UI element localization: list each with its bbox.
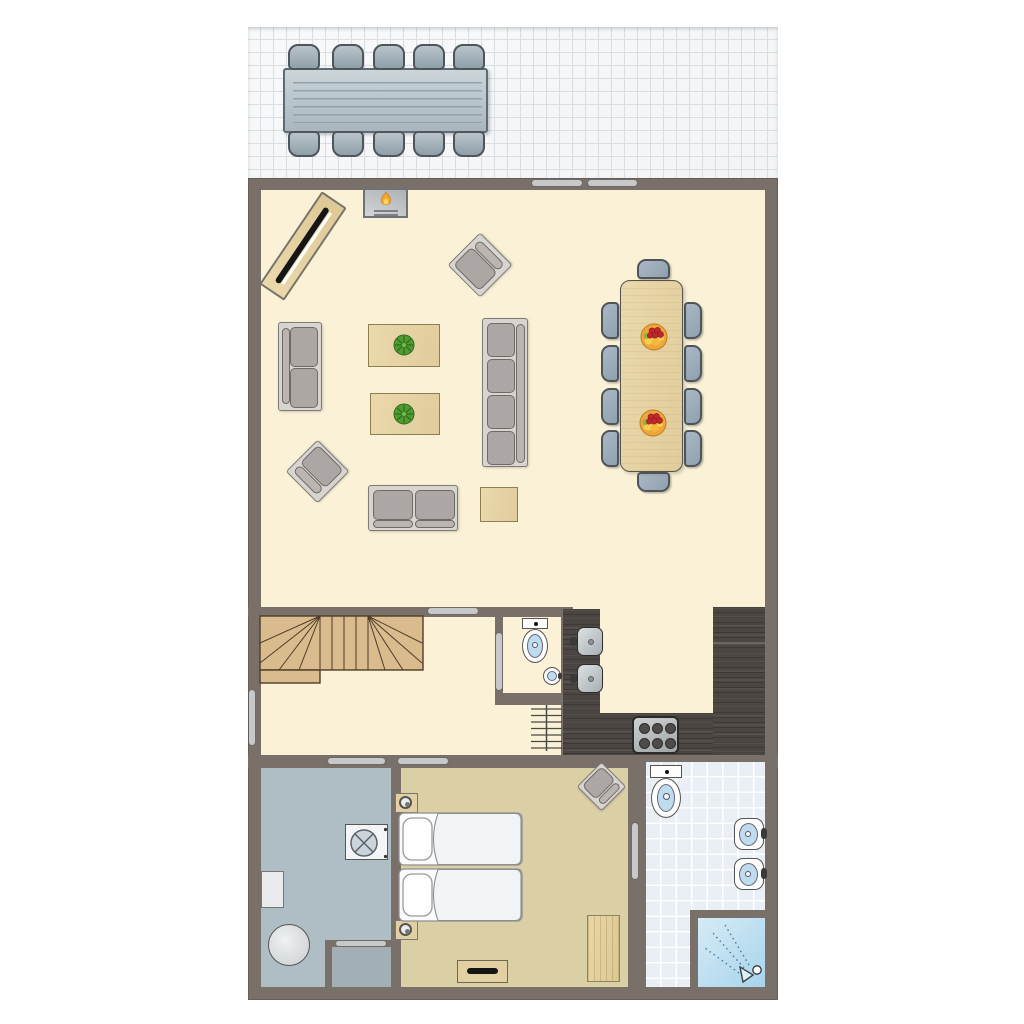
sofa-4-seat (482, 318, 528, 467)
burner-icon (652, 738, 663, 749)
floor-plan-canvas (0, 0, 1024, 1024)
bathroom-door-bar (632, 823, 638, 879)
sofa-cushion (415, 490, 455, 520)
plant-icon (393, 334, 415, 356)
side-table (480, 487, 518, 522)
dining-chair (684, 388, 702, 425)
sofa-cushion (487, 431, 515, 465)
burner-icon (652, 723, 663, 734)
sofa-back (516, 324, 525, 463)
nightstand (395, 920, 418, 940)
hall-window-bar (249, 690, 255, 745)
flush-button-icon (534, 622, 538, 626)
fruit-bowl-icon (639, 409, 667, 437)
flush-button-icon (665, 770, 669, 774)
sofa-back (282, 328, 290, 404)
nightstand (395, 793, 418, 813)
dining-chair (601, 430, 619, 467)
kitchen-counter-seam (713, 642, 765, 644)
dining-chair (601, 302, 619, 339)
plant-icon (393, 403, 415, 425)
wall-shower-left (690, 918, 698, 987)
sink-drain (588, 639, 594, 645)
dining-chair (601, 345, 619, 382)
shower (698, 918, 765, 987)
basin-tap-icon (761, 828, 767, 839)
utility-door-bar (328, 758, 385, 764)
burner-icon (639, 723, 650, 734)
sofa-2-seat (278, 322, 322, 411)
wc-toilet-bowl (522, 629, 548, 663)
washing-machine (345, 824, 388, 860)
sofa-back (415, 520, 455, 528)
wardrobe (587, 915, 620, 982)
flame-icon (379, 191, 393, 209)
terrace-door-bar (588, 180, 637, 186)
dining-table (620, 280, 683, 472)
kitchen-tap-icon (570, 674, 577, 683)
toilet-drain (532, 642, 538, 648)
sofa-cushion (373, 490, 413, 520)
sofa-back (373, 520, 413, 528)
dresser-with-tv (457, 960, 508, 983)
sofa-2-seat (368, 485, 458, 531)
toilet-drain (663, 793, 670, 800)
bedroom-door-bar (398, 758, 448, 764)
wall-wc-bottom (495, 693, 573, 705)
dining-chair (684, 345, 702, 382)
staircase (259, 615, 425, 685)
stove-six-burner (632, 716, 679, 754)
bathroom-toilet-tank (650, 765, 682, 778)
wc-toilet-tank (522, 618, 548, 629)
outdoor-dining-table (283, 68, 488, 133)
wall-shower-top (690, 910, 765, 918)
wash-basin (734, 858, 764, 890)
terrace-door-bar (532, 180, 582, 186)
kitchen-sink (577, 664, 603, 693)
outdoor-chair (332, 131, 364, 157)
outdoor-chair (288, 131, 320, 157)
kitchen-sink (577, 627, 603, 656)
sink-drain (588, 676, 594, 682)
sofa-cushion (487, 359, 515, 393)
outdoor-chair (453, 44, 485, 70)
utility-side-table (261, 871, 284, 908)
closet-floor (332, 947, 391, 987)
lamp-bulb (405, 929, 410, 934)
living-hall-opening-bar (428, 608, 478, 614)
wc-door-bar (496, 633, 502, 690)
outdoor-chair (373, 131, 405, 157)
outdoor-chair (413, 44, 445, 70)
burner-icon (639, 738, 650, 749)
fireplace (363, 188, 408, 218)
boiler (268, 924, 310, 966)
double-bed (398, 812, 524, 922)
burner-icon (665, 723, 676, 734)
basin-water (547, 671, 557, 681)
outdoor-chair (453, 131, 485, 157)
dining-chair (637, 259, 670, 279)
basin-tap-icon (761, 868, 767, 879)
washing-machine-drum-icon (346, 825, 389, 861)
sofa-cushion (487, 323, 515, 357)
lamp-icon (399, 923, 412, 936)
fruit-bowl-icon (640, 323, 668, 351)
closet-hatch-bar (336, 941, 386, 946)
kitchen-counter-right (713, 607, 765, 755)
dining-chair (637, 472, 670, 492)
lamp-icon (399, 796, 412, 809)
bathroom-toilet-bowl (651, 778, 681, 818)
dining-chair (684, 430, 702, 467)
shower-spray-icon (698, 918, 765, 987)
outdoor-table-slats (293, 82, 482, 123)
terrace-area (248, 27, 778, 178)
fireplace-grate-line (374, 210, 398, 212)
sofa-cushion (487, 395, 515, 429)
dining-chair (684, 302, 702, 339)
wall-closet-left (325, 940, 332, 987)
sofa-cushion (290, 327, 318, 367)
wash-basin (734, 818, 764, 850)
sofa-cushion (290, 368, 318, 408)
tv-screen-icon (467, 968, 498, 974)
outdoor-chair (332, 44, 364, 70)
outdoor-chair (288, 44, 320, 70)
radiator-icon (531, 705, 562, 751)
basin-drain (745, 871, 751, 877)
basin-tap-icon (558, 673, 562, 679)
burner-icon (665, 738, 676, 749)
basin-drain (745, 831, 751, 837)
lamp-bulb (405, 802, 410, 807)
dining-chair (601, 388, 619, 425)
outdoor-chair (413, 131, 445, 157)
outdoor-chair (373, 44, 405, 70)
fireplace-grate-line (374, 214, 398, 216)
kitchen-tap-icon (570, 637, 577, 646)
